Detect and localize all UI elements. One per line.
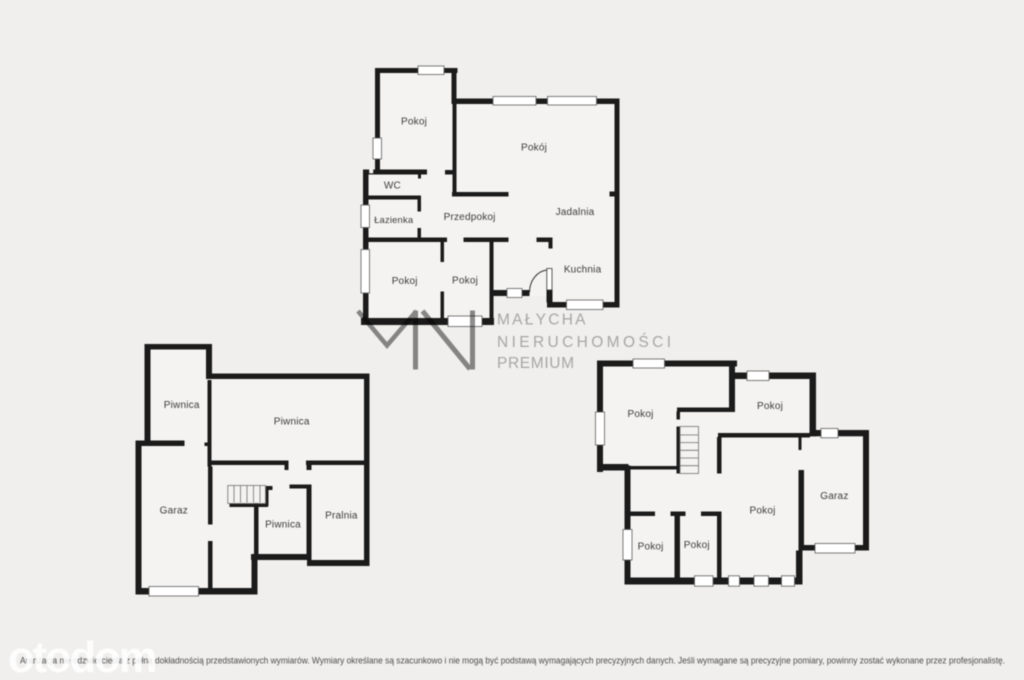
svg-text:Przedpokoj: Przedpokoj	[444, 212, 496, 223]
svg-text:Łazienka: Łazienka	[374, 214, 414, 225]
svg-text:Pokoj: Pokoj	[452, 276, 478, 287]
svg-text:WC: WC	[384, 181, 401, 192]
svg-text:NIERUCHOMOŚCI: NIERUCHOMOŚCI	[497, 333, 673, 351]
svg-text:Aranżacja nie odzwierciedla z: Aranżacja nie odzwierciedla z pełną dokł…	[20, 656, 1005, 666]
svg-text:Pokoj: Pokoj	[757, 401, 783, 412]
svg-text:Piwnica: Piwnica	[265, 519, 301, 530]
svg-text:Pokoj: Pokoj	[392, 276, 418, 287]
svg-text:Jadalnia: Jadalnia	[556, 207, 595, 218]
svg-text:Piwnica: Piwnica	[164, 400, 200, 411]
svg-text:Pokoj: Pokoj	[684, 540, 710, 551]
svg-text:Pokoj: Pokoj	[627, 409, 653, 420]
svg-text:Kuchnia: Kuchnia	[564, 264, 602, 275]
svg-text:PREMIUM: PREMIUM	[497, 355, 576, 372]
svg-text:Pokoj: Pokoj	[638, 542, 664, 553]
svg-text:Pokoj: Pokoj	[749, 506, 775, 517]
svg-text:Piwnica: Piwnica	[274, 417, 310, 428]
svg-text:otodom: otodom	[8, 634, 155, 680]
svg-text:Pralnia: Pralnia	[325, 511, 358, 522]
svg-text:Pokój: Pokój	[521, 143, 547, 154]
svg-text:Garaz: Garaz	[160, 505, 188, 516]
svg-text:Garaz: Garaz	[820, 491, 848, 502]
svg-text:Pokoj: Pokoj	[401, 117, 427, 128]
svg-text:MAŁYCHA: MAŁYCHA	[497, 311, 588, 328]
